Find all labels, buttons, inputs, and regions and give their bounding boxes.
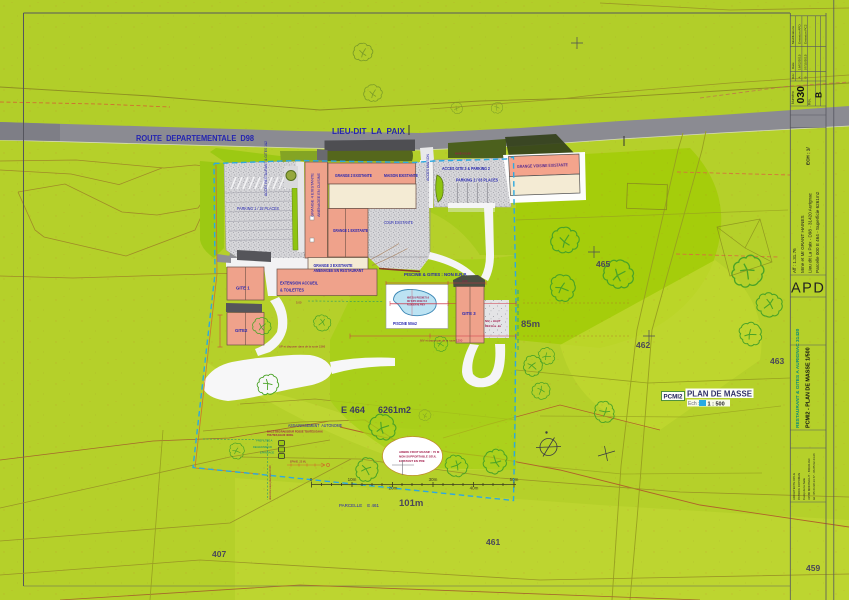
svg-text:461: 461 [486, 537, 500, 547]
svg-text:AMENAGEE EN CUISINE: AMENAGEE EN CUISINE [316, 173, 321, 217]
svg-text:31580 MONTEGUT - BOURJAC: 31580 MONTEGUT - BOURJAC [807, 458, 811, 500]
svg-text:ARBRE FRUIT MASSIF : 70 M: ARBRE FRUIT MASSIF : 70 M [399, 450, 440, 454]
svg-text:Emission APD: Emission APD [798, 24, 802, 44]
svg-text:85m: 85m [521, 319, 540, 330]
svg-text:462: 462 [636, 340, 650, 350]
svg-text:& TOILETTES: & TOILETTES [280, 288, 304, 293]
svg-text:10m: 10m [348, 477, 357, 482]
svg-text:PCMI2: PCMI2 [664, 394, 683, 401]
svg-text:ASSAINISSEMENT AUTONOME: ASSAINISSEMENT AUTONOME [288, 423, 342, 428]
svg-text:PATRICK FRYDMAN: PATRICK FRYDMAN [797, 473, 801, 500]
svg-text:PARKING 2 / 03 PLACES: PARKING 2 / 03 PLACES [456, 178, 498, 183]
svg-text:NIVE EAU PISCINE 79.0: NIVE EAU PISCINE 79.0 [407, 297, 430, 300]
svg-text:4.00: 4.00 [462, 279, 468, 283]
svg-text:PISCINE 50m2: PISCINE 50m2 [393, 321, 417, 326]
svg-text:GRANGE 4 EXISTANTE: GRANGE 4 EXISTANTE [310, 173, 315, 217]
svg-text:407: 407 [212, 549, 226, 559]
svg-text:20m: 20m [389, 486, 398, 491]
svg-text:5.00: 5.00 [296, 301, 302, 305]
svg-text:Camp de la Salle: Camp de la Salle [802, 478, 806, 500]
svg-text:GITE 1: GITE 1 [236, 286, 250, 291]
svg-text:PREFILTRE A: PREFILTRE A [256, 439, 273, 443]
svg-text:Ech :: Ech : [688, 401, 699, 407]
svg-text:6261m2: 6261m2 [378, 405, 411, 415]
svg-text:PLONGEIR NL PREV: PLONGEIR NL PREV [407, 305, 425, 307]
svg-text:NON SUPPORTABLE SEUL: NON SUPPORTABLE SEUL [399, 455, 437, 459]
svg-text:MAISON EXISTANTE: MAISON EXISTANTE [384, 173, 418, 178]
svg-text:E 464: E 464 [341, 405, 365, 415]
svg-text:PARKING 1 / 15 PLACES: PARKING 1 / 15 PLACES [237, 206, 279, 211]
svg-text:Lieu dit La Paix - D98 - 31420: Lieu dit La Paix - D98 - 31420 Aurignac [808, 192, 813, 273]
svg-text:Rév.: Rév. [808, 98, 812, 105]
svg-text:465: 465 [596, 259, 610, 269]
svg-text:ACCES RESTAURANT & GITES 1&2: ACCES RESTAURANT & GITES 1&2 [263, 140, 268, 196]
svg-text:ECH : 1/: ECH : 1/ [806, 147, 811, 165]
svg-text:ARCHITECTE DPLG: ARCHITECTE DPLG [792, 472, 796, 500]
svg-text:BACS DEGRAISSEUR FOSSE TOUTES: BACS DEGRAISSEUR FOSSE TOUTES EAUX [267, 430, 323, 434]
svg-text:B: B [804, 76, 808, 78]
svg-text:Emission PC2: Emission PC2 [804, 24, 808, 44]
svg-text:463: 463 [770, 356, 784, 366]
svg-text:PISCINE & GITES : NON E.R.P.: PISCINE & GITES : NON E.R.P. [404, 272, 467, 277]
svg-text:ACCES GITE 3 & PARKING 2: ACCES GITE 3 & PARKING 2 [442, 166, 490, 171]
svg-text:030: 030 [795, 86, 807, 104]
svg-text:PLAN DE MASSE: PLAN DE MASSE [687, 390, 753, 399]
svg-text:RESTAURANT & GITES A AURIGNAC: RESTAURANT & GITES A AURIGNAC 31420 [795, 328, 801, 428]
svg-text:Aff : 1.31.76: Aff : 1.31.76 [792, 248, 797, 273]
svg-text:1 : 500: 1 : 500 [708, 402, 725, 408]
svg-text:descente eaux pluviales D100: descente eaux pluviales D100 [268, 465, 272, 500]
svg-text:GITE2: GITE2 [235, 328, 248, 333]
svg-text:REZ Exe .2e: REZ Exe .2e [485, 324, 501, 328]
svg-text:ACCES MAISON: ACCES MAISON [426, 154, 430, 181]
svg-text:16/02/2015: 16/02/2015 [798, 54, 802, 70]
svg-text:EXTENSION ACCUEIL: EXTENSION ACCUEIL [280, 281, 318, 286]
svg-text:NIV et depart par de la route: NIV et depart par de la route 1200 [420, 339, 463, 343]
svg-text:EPANDAGE: EPANDAGE [260, 451, 274, 455]
svg-text:ROUTE DEPARTEMENTALE D98: ROUTE DEPARTEMENTALE D98 [136, 134, 254, 143]
svg-text:GITE 3: GITE 3 [462, 311, 476, 316]
svg-text:30m: 30m [429, 477, 438, 482]
svg-text:Rév: Rév [791, 73, 795, 79]
svg-text:Modifications: Modifications [791, 25, 795, 44]
svg-text:459: 459 [806, 563, 820, 573]
svg-text:AMENAGEE EN RESTAURANT: AMENAGEE EN RESTAURANT [314, 268, 364, 273]
svg-text:GRANGE 2 EXISTANTE: GRANGE 2 EXISTANTE [335, 173, 372, 178]
svg-text:PARCELLE E 461: PARCELLE E 461 [339, 503, 380, 508]
svg-text:Date: Date [791, 62, 795, 69]
svg-text:EXISTANT EN PRE: EXISTANT EN PRE [399, 459, 425, 463]
svg-text:DEGRAISSEUR: DEGRAISSEUR [253, 445, 272, 449]
svg-text:07/10/2015: 07/10/2015 [804, 54, 808, 70]
svg-text:NIV SUPC EXIGE 79.2: NIV SUPC EXIGE 79.2 [407, 301, 428, 303]
svg-text:GRANGE 1 EXISTANTE: GRANGE 1 EXISTANTE [333, 228, 368, 233]
svg-text:B: B [814, 92, 824, 98]
svg-text:PCMI2 - PLAN DE MASSE 1/500: PCMI2 - PLAN DE MASSE 1/500 [806, 347, 812, 428]
svg-text:TOUTES EAUX 3000L: TOUTES EAUX 3000L [267, 433, 294, 437]
svg-text:50m: 50m [510, 477, 519, 482]
svg-text:UP et disposer dans de la rout: UP et disposer dans de la route 1566 [279, 345, 326, 349]
svg-text:Mme et Mr GRANT HAINES: Mme et Mr GRANT HAINES [800, 215, 805, 273]
svg-text:COUR EXISTANTE: COUR EXISTANTE [384, 220, 413, 225]
svg-text:40m: 40m [470, 486, 479, 491]
svg-text:HAIE H 2.00: HAIE H 2.00 [455, 152, 471, 156]
svg-text:Parcelle 000 E 464 - Superfici: Parcelle 000 E 464 - Superficie 6261m2 [815, 191, 820, 273]
svg-text:NIV + HAUT: NIV + HAUT [485, 319, 501, 323]
svg-text:LIEU-DIT LA PAIX: LIEU-DIT LA PAIX [332, 127, 406, 136]
svg-text:EPAND. 25 ML: EPAND. 25 ML [290, 461, 307, 464]
svg-text:APD: APD [791, 281, 825, 297]
svg-text:101m: 101m [399, 498, 423, 509]
svg-text:tel : 05.61.98.13.77 - 06.85.9: tel : 05.61.98.13.77 - 06.85.92.44.26 [812, 453, 816, 500]
